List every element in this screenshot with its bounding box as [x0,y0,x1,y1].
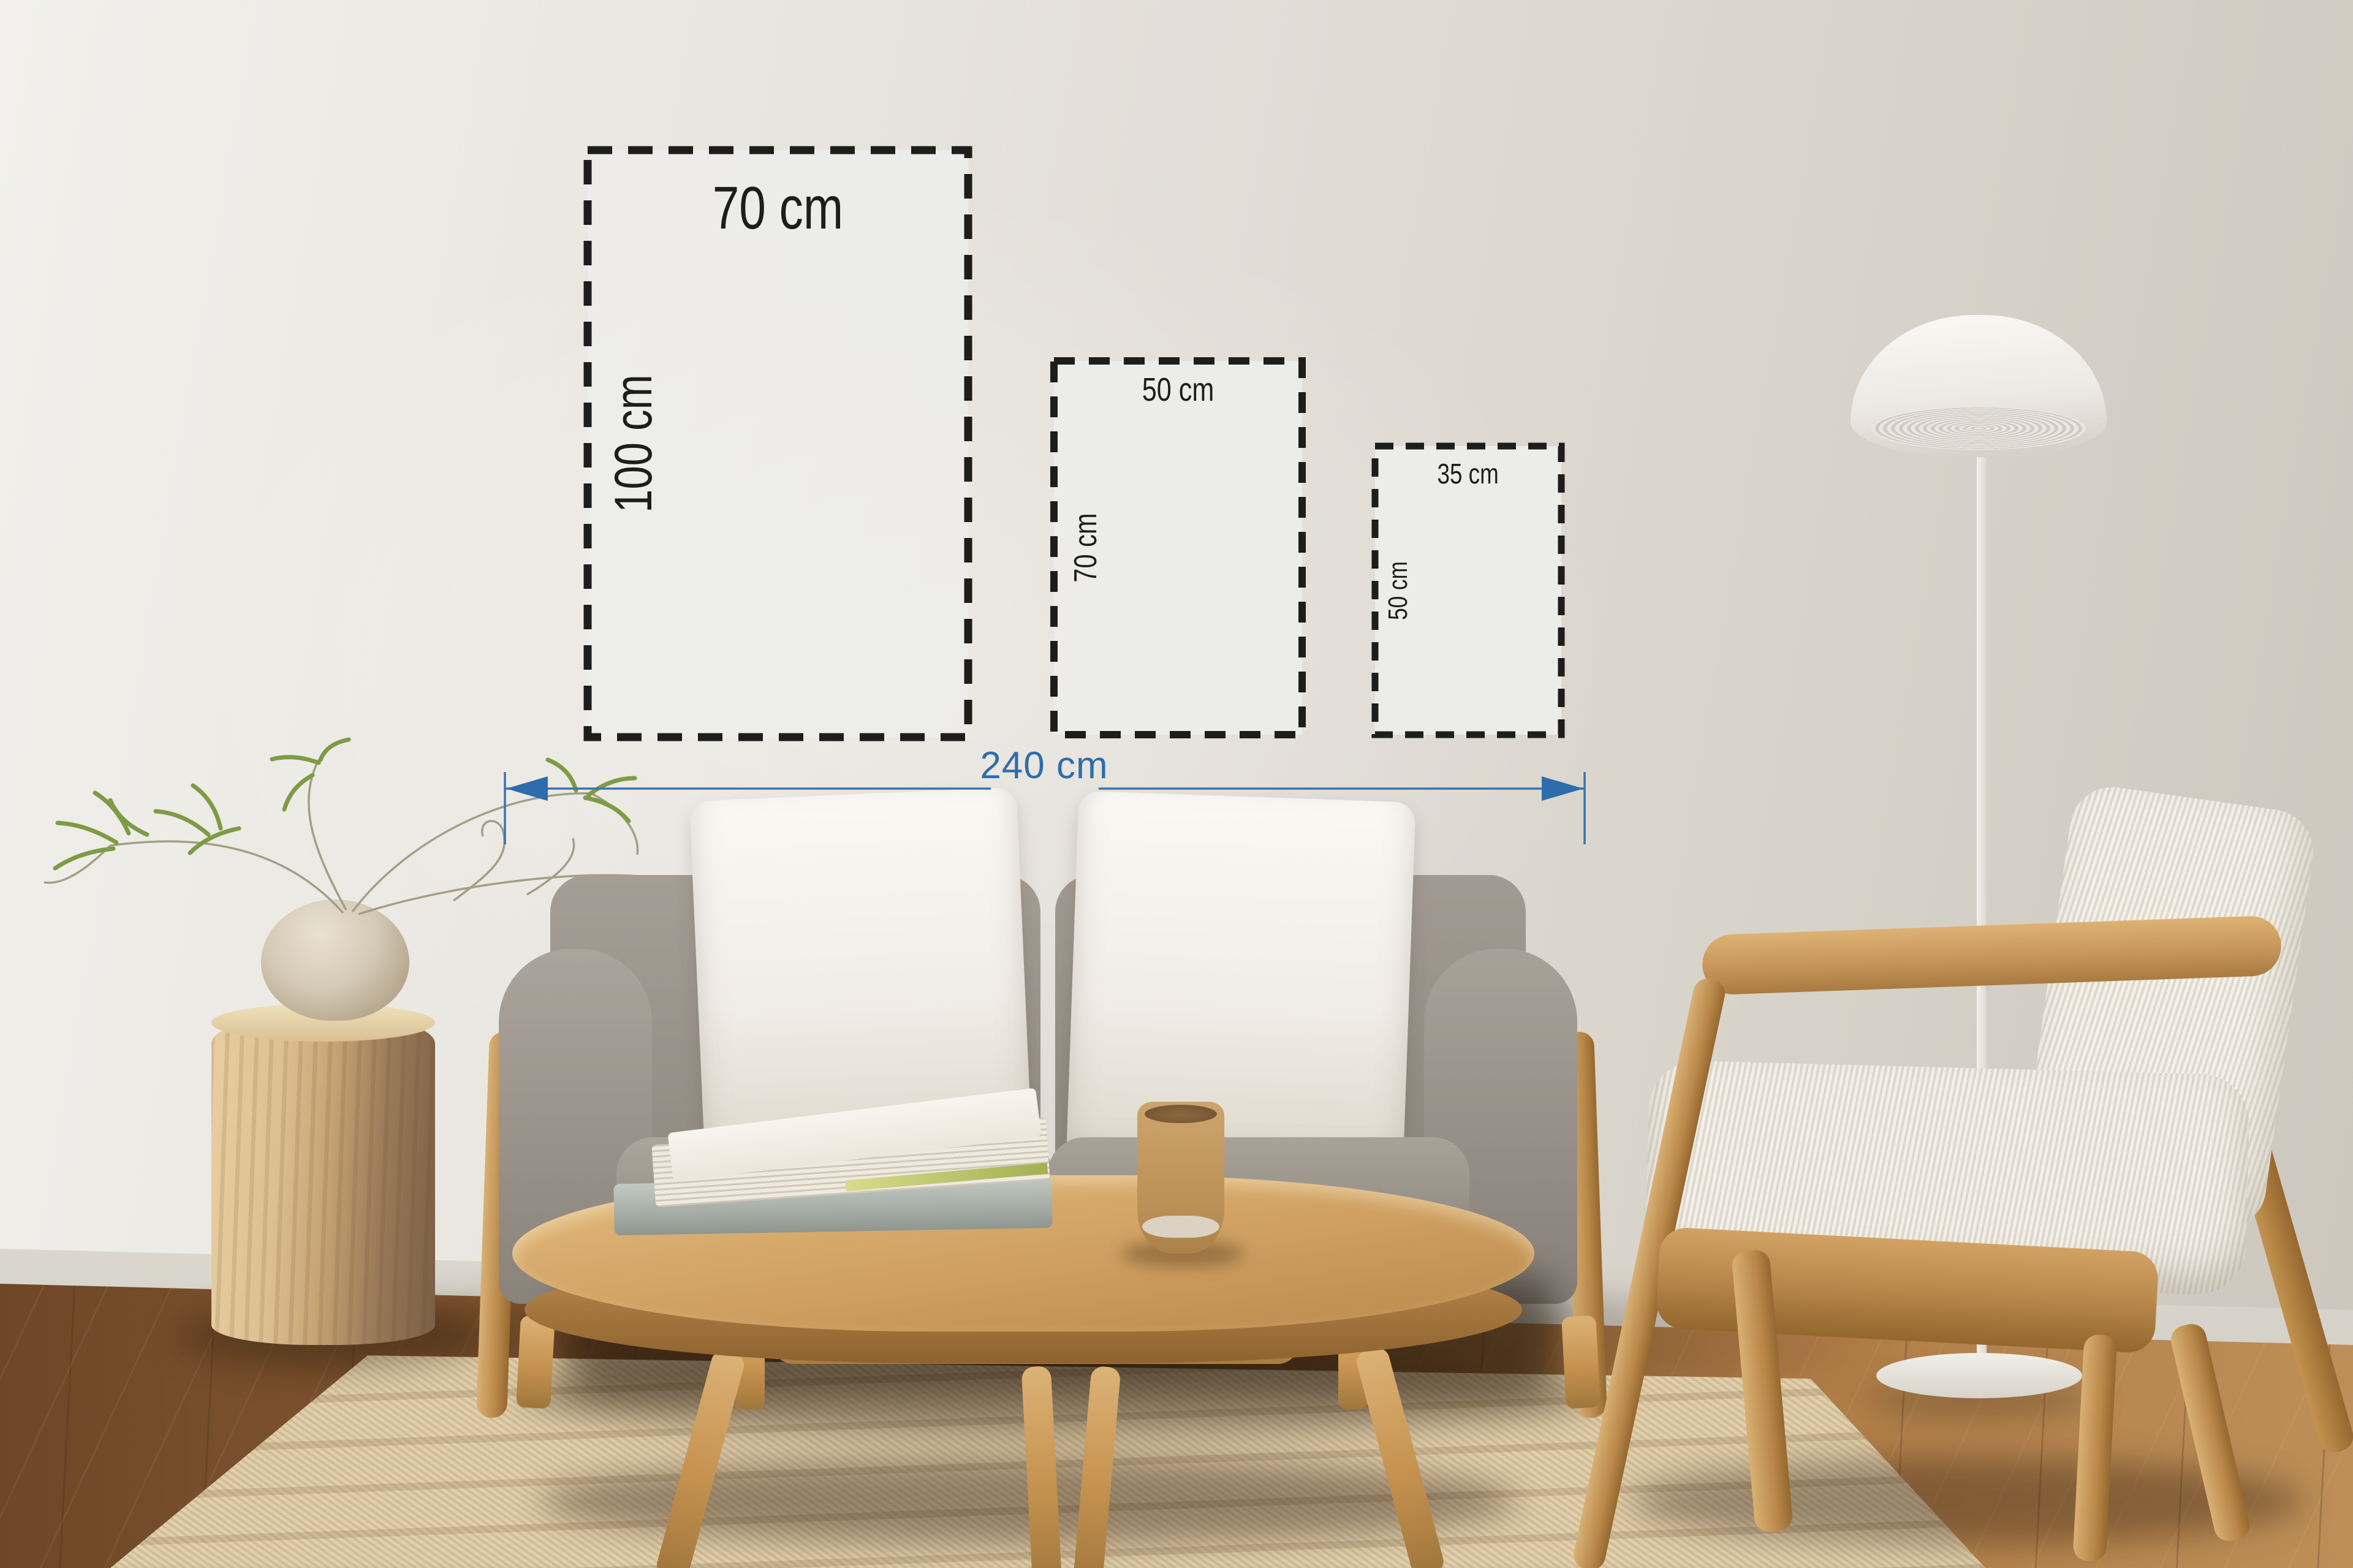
sofa-pillow-right [1066,791,1415,1178]
cup [1137,1102,1224,1254]
size-guide-frame-70x100: 70 cm 100 cm [583,146,972,741]
size-guide-frame-50x70: 50 cm 70 cm [1050,357,1306,738]
frame-height-label: 70 cm [1066,357,1105,738]
armchair-leg [2072,1334,2117,1562]
log-side-table [211,1014,435,1345]
table-leg [1354,1345,1447,1568]
floor-lamp-louvers [1871,407,2086,450]
wall-width-label: 240 cm [946,744,1142,787]
table-leg [1021,1366,1063,1568]
cup-band [1142,1216,1219,1238]
armchair [1593,772,2353,1568]
living-room-scene: 70 cm 100 cm 50 cm 70 cm 35 cm 50 cm [0,0,2353,1568]
size-guide-frame-35x50: 35 cm 50 cm [1371,442,1565,738]
table-leg [654,1348,746,1568]
frame-height-label: 50 cm [1380,442,1417,738]
table-leg [1072,1366,1121,1568]
armchair-leg [2168,1321,2252,1544]
frame-height-label: 100 cm [605,146,662,741]
cup-rim [1145,1105,1217,1123]
